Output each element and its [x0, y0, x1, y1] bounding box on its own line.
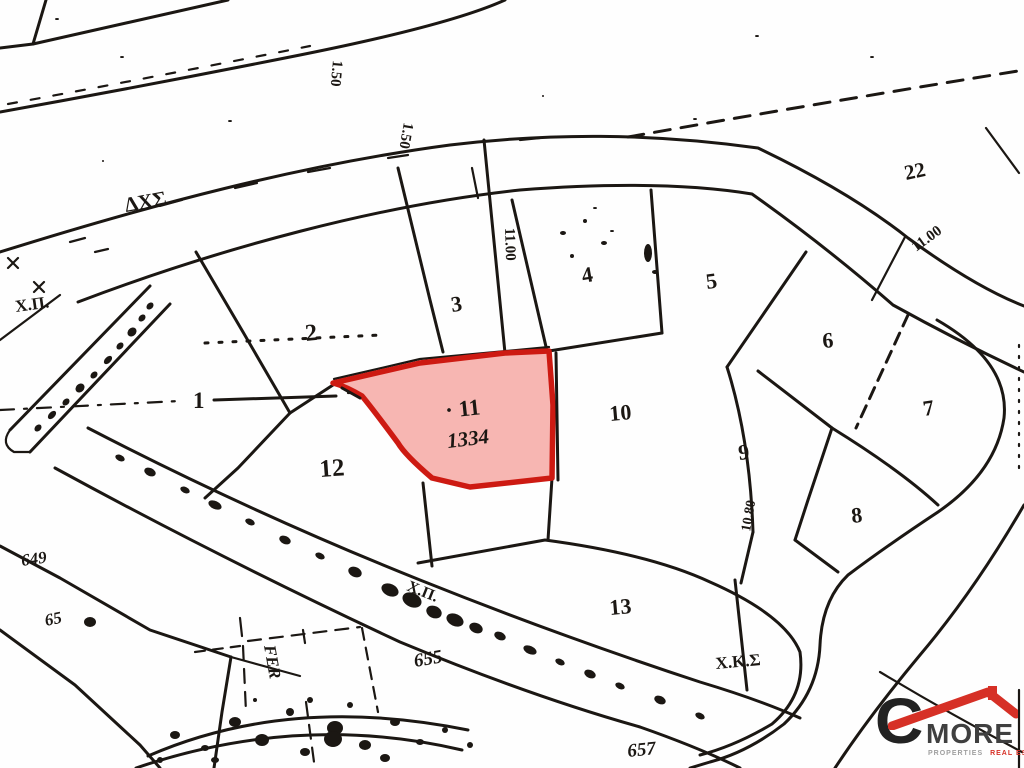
scan-noise: [278, 534, 292, 546]
logo-tagline: PROPERTIES REAL ESTATES: [928, 750, 1024, 757]
scan-noise: [653, 694, 667, 706]
scan-noise: [601, 241, 607, 245]
map-label-plot-11: · 11: [444, 394, 482, 423]
scan-noise: [145, 301, 155, 311]
scan-noise: [644, 244, 652, 262]
scan-noise: [359, 740, 371, 750]
plot-boundary: [758, 371, 832, 428]
map-label-ref-655: 655: [412, 646, 444, 672]
map-label-plot-6: 6: [821, 327, 834, 353]
map-label-annotation-fer: FER: [260, 642, 285, 680]
map-label-plot-2: 2: [304, 320, 319, 347]
scan-noise: [307, 697, 313, 703]
plot-boundary: [423, 483, 432, 566]
tick-mark: [872, 237, 905, 300]
map-label-dim-1100-mid: 11.00: [501, 228, 518, 261]
plot-boundary: [512, 200, 547, 351]
plot-boundary-dashed: [856, 315, 908, 428]
map-label-plot-8: 8: [850, 502, 864, 528]
plot-boundary: [205, 413, 290, 498]
boundary-line: [33, 0, 228, 44]
scan-noise: [468, 621, 485, 636]
plot-boundary: [795, 428, 832, 540]
boundary-line: [214, 396, 336, 400]
logo-tagline-gray: PROPERTIES: [928, 750, 983, 757]
scan-noise: [228, 120, 232, 122]
map-label-plot-5: 5: [704, 268, 718, 294]
track-dashes: [8, 46, 310, 104]
map-label-plot-11-area: 1334: [446, 424, 491, 453]
plot-boundary: [651, 190, 662, 333]
scan-noise: [693, 118, 697, 120]
scan-noise: [390, 718, 400, 726]
scan-noise: [554, 657, 566, 667]
scan-noise: [120, 56, 124, 58]
map-label-ref-65: 65: [43, 608, 64, 630]
scan-noise: [170, 731, 180, 739]
plot-boundary: [832, 428, 938, 505]
scan-noise: [89, 370, 99, 380]
dashed-parcel: [240, 618, 242, 636]
scan-noise: [380, 754, 390, 762]
scan-noise: [444, 611, 465, 629]
scan-noise: [114, 453, 126, 463]
plot-boundary: [549, 333, 662, 351]
plot-boundary: [398, 168, 443, 352]
plot-boundary: [548, 478, 552, 540]
scan-noise: [255, 734, 269, 746]
plot-boundary: [795, 540, 838, 572]
scan-noise: [179, 485, 191, 495]
map-label-plot-1: 1: [193, 388, 205, 413]
scan-noise: [115, 341, 125, 351]
scan-noise: [229, 717, 241, 727]
scan-noise: [610, 230, 614, 232]
map-canvas: ΔΧΣΧ.Π.1.501.5011.00123452211.006710910.…: [0, 0, 1024, 768]
scan-noise: [286, 708, 294, 716]
scan-noise: [33, 423, 43, 433]
scan-noise: [61, 397, 71, 407]
scan-noise: [157, 757, 163, 763]
plot-boundary: [290, 385, 333, 413]
map-label-plot-3: 3: [449, 291, 463, 317]
scan-noise: [201, 745, 209, 751]
scan-noise: [300, 748, 310, 756]
boundary-line: [33, 0, 46, 44]
plot-boundary: [727, 252, 806, 367]
scan-noise: [560, 231, 566, 235]
labels-layer: ΔΧΣΧ.Π.1.501.5011.00123452211.006710910.…: [14, 60, 945, 762]
scan-noise: [143, 466, 157, 478]
plot-boundary: [214, 657, 231, 768]
map-label-annotation-xks: Χ.Κ.Σ: [715, 650, 762, 673]
scan-noise: [347, 702, 353, 708]
plot-boundary: [196, 252, 290, 413]
map-label-ref-657: 657: [626, 738, 658, 762]
scan-noise: [55, 18, 59, 20]
dash-dot-line: [0, 401, 180, 410]
scan-noise: [694, 711, 706, 721]
brand-logo: C MORE PROPERTIES REAL ESTATES: [868, 682, 1024, 768]
plot-boundary: [741, 532, 753, 583]
map-label-plot-4: 4: [580, 261, 595, 288]
scan-noise: [347, 565, 364, 580]
dotted-line: [205, 335, 382, 343]
map-label-dim-1080: 10.80: [739, 499, 759, 533]
cadastral-map: ΔΧΣΧ.Π.1.501.5011.00123452211.006710910.…: [0, 0, 1024, 768]
scan-noise: [614, 681, 626, 691]
logo-wordmark: MORE: [926, 718, 1014, 750]
scan-noise: [442, 727, 448, 733]
dashed-boundary: [628, 70, 1024, 137]
map-label-plot-7: 7: [921, 395, 935, 421]
track-line: [0, 0, 505, 112]
map-label-plot-9: 9: [737, 439, 751, 465]
boundary-line: [986, 128, 1019, 173]
scan-noise: [583, 219, 587, 223]
plot-boundary: [0, 630, 160, 768]
scan-noise: [102, 160, 104, 162]
scan-noise: [593, 207, 597, 209]
scan-arc: [136, 735, 462, 768]
scan-noise: [652, 270, 658, 274]
map-label-plot-10: 10: [608, 399, 632, 426]
scan-noise: [542, 95, 544, 97]
map-label-ref-649: 649: [20, 548, 48, 570]
map-label-boundary-abbrev-dxs: ΔΧΣ: [123, 186, 169, 217]
map-label-plot-12: 12: [319, 454, 346, 483]
scan-noise: [244, 517, 256, 527]
scan-noise: [755, 35, 759, 37]
scan-noise: [379, 581, 400, 599]
scan-noise: [493, 630, 507, 642]
dashed-parcel: [362, 628, 378, 712]
map-label-plot-22: 22: [902, 157, 928, 185]
dashed-parcel: [303, 630, 305, 643]
scan-noise: [211, 757, 219, 763]
scan-noise: [207, 498, 223, 511]
dashed-parcel: [243, 646, 246, 712]
logo-tagline-red: REAL ESTATES: [990, 750, 1024, 757]
scan-noise: [870, 56, 874, 58]
scan-noise: [253, 698, 257, 702]
scan-noise: [583, 668, 597, 680]
scan-noise: [46, 409, 57, 420]
scan-noise: [324, 731, 342, 747]
scan-noise: [416, 739, 424, 745]
scan-noise: [424, 603, 444, 621]
strip-cap: [6, 430, 30, 452]
scan-noise: [84, 617, 96, 627]
road-upper-edge: [0, 136, 1024, 306]
strip-edge: [30, 304, 170, 452]
scan-noise: [570, 254, 574, 258]
scan-noise: [522, 643, 538, 656]
scan-noise: [467, 742, 473, 748]
boundary-line: [0, 44, 33, 48]
scan-noise: [126, 326, 139, 339]
map-label-plot-13: 13: [608, 593, 632, 620]
plot-boundary: [556, 353, 558, 480]
map-label-annotation-xp-upper: Χ.Π.: [14, 292, 50, 316]
map-label-dim-150-track: 1.50: [327, 60, 345, 88]
scan-noise: [314, 551, 326, 561]
tick-mark: [472, 168, 478, 198]
scan-noise: [137, 313, 147, 323]
map-label-dim-150-road: 1.50: [396, 121, 416, 150]
